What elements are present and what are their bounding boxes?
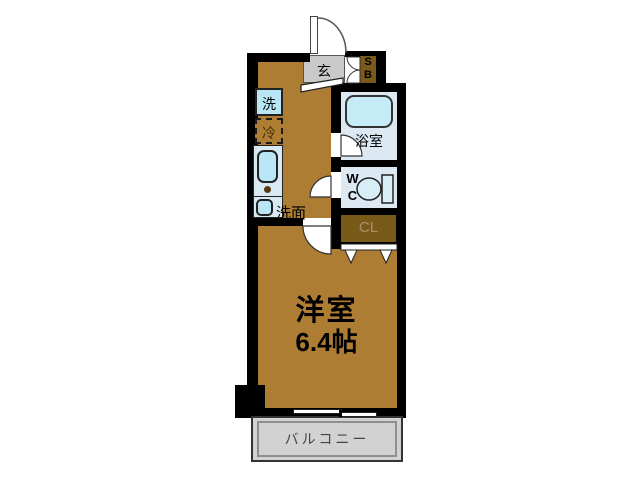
closet-label: CL [338,219,399,236]
shoebox-letter-s: S [359,56,377,68]
shoebox-letter-b: B [359,69,377,81]
stove-burner [264,186,271,193]
kitchen-sink [257,150,278,183]
window-pane-right [341,412,377,417]
toilet-letter-w: W [345,171,360,186]
bathtub [345,95,393,128]
washstand-basin [256,199,273,216]
wc-door-opening [331,172,341,198]
refrigerator-label: 冷 [255,123,283,143]
balcony-label: バルコニー [251,429,403,449]
wall-bath-top [331,83,406,92]
entrance-door-swing-arc [318,18,346,53]
floorplan: 玄 S B 洗 冷 浴室 W C 洗面 CL 洋室 6.4帖 バルコニー [0,0,640,480]
window-pane-left [293,409,342,414]
entrance-door-leaf [310,16,318,54]
washing-machine-label: 洗 [255,94,283,114]
wall-top-left [247,53,310,62]
bathroom-label: 浴室 [341,131,397,151]
wall-bath-wc [341,160,406,167]
wall-right-upper [376,51,386,85]
bath-door-opening [331,133,341,157]
western-room-size: 6.4帖 [255,322,398,359]
toilet-letter-c: C [345,188,360,203]
wall-right-main [397,83,406,418]
room-door-opening [303,218,331,226]
pillar-bottom-left [235,385,265,418]
washstand-label: 洗面 [276,202,306,223]
entrance-label: 玄 [303,61,345,81]
